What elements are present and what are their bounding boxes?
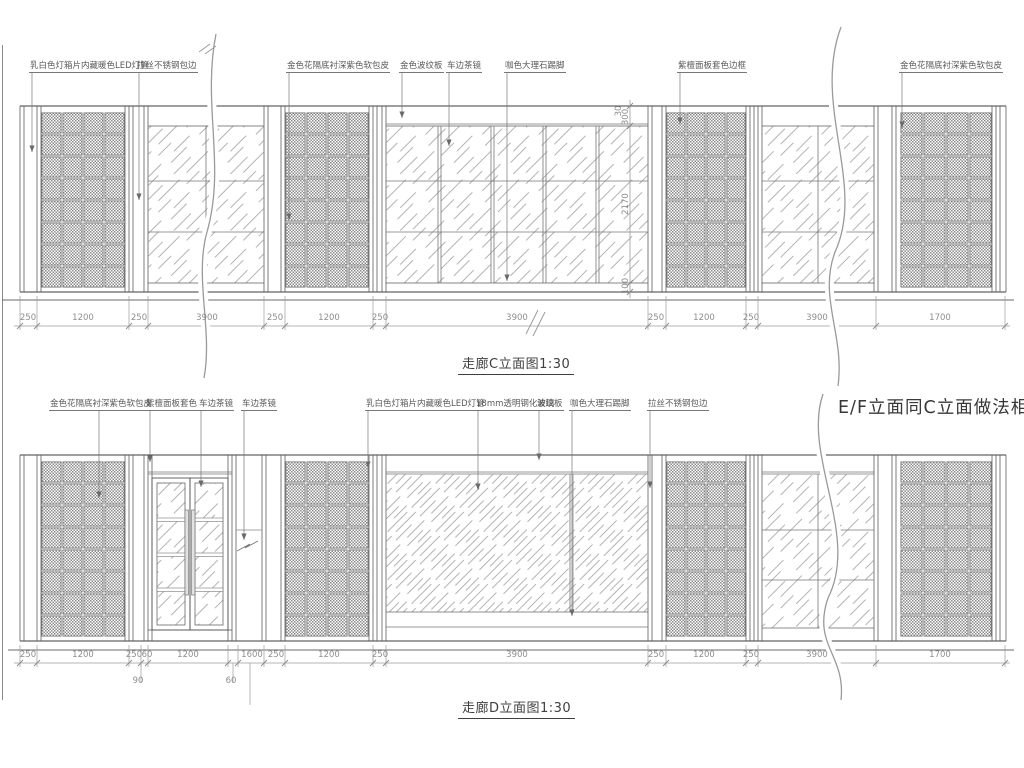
dimension-value: 250 [648,313,664,323]
dimension-value: 250 [372,650,388,660]
dimension-value: 1200 [693,650,715,660]
dimension-value: 1200 [693,313,715,323]
dimension-value: 1700 [929,650,951,660]
material-callout: 乳白色灯箱片内藏暖色LED灯管 [29,61,150,73]
dimension-value: 250 [20,313,36,323]
material-callout: 金色花隔底衬深紫色软包皮 [286,61,390,73]
dimension-value: 60 [142,650,153,660]
dimension-value: 250 [20,650,36,660]
material-callout: 拉丝不锈钢包边 [647,399,709,411]
ef-elevation-note: E/F立面同C立面做法相同 [838,394,1024,419]
elevation-c-title: 走廊C立面图1:30 [458,353,574,375]
dimension-value: 250 [126,650,142,660]
material-callout: 金色花隔底衬深紫色软包皮 [899,61,1003,73]
dimension-value: 1200 [318,650,340,660]
material-callout: 车边茶镜 [198,399,234,411]
material-callout: 乳白色灯箱片内藏暖色LED灯管 [365,399,486,411]
dimension-value: 250 [743,650,759,660]
dimension-value: 3900 [806,650,828,660]
material-callout: 车边茶镜 [446,61,482,73]
dimension-value: 1200 [318,313,340,323]
dimension-value: 1200 [72,650,94,660]
dimension-value-vertical: 2170 [621,182,631,226]
material-callout: 车边茶镜 [241,399,277,411]
cad-elevation-sheet: 乳白色灯箱片内藏暖色LED灯管 拉丝不锈钢包边 金色花隔底衬深紫色软包皮 金色波… [0,0,1024,768]
dimension-value: 3900 [506,313,528,323]
dimension-value: 1200 [177,650,199,660]
material-callout: 咖色大理石踢脚 [569,399,631,411]
dimension-value: 250 [268,650,284,660]
dimension-value-vertical: 100 [621,264,631,308]
dimension-value: 3900 [806,313,828,323]
material-callout: 咖色大理石踢脚 [504,61,566,73]
dimension-value: 1600 [241,650,263,660]
dimension-value: 250 [131,313,147,323]
material-callout: 拉丝不锈钢包边 [136,61,198,73]
material-callout: 紫檀面板套色 [145,399,198,411]
dimension-value: 250 [648,650,664,660]
dimension-value: 250 [267,313,283,323]
dimension-value-sub: 60 [226,676,237,686]
material-callout: 金色花隔底衬深紫色软包皮 [49,399,153,411]
material-callout: 金色波纹板 [399,61,444,73]
material-callout: 紫檀面板套色边框 [677,61,747,73]
dimension-value-vertical: 300 [621,95,631,139]
dimension-value-sub: 90 [133,676,144,686]
material-callout: 波纹板 [536,399,564,411]
dimension-value: 1700 [929,313,951,323]
dimension-value: 3900 [506,650,528,660]
dimension-value: 3900 [196,313,218,323]
dimension-value: 1200 [72,313,94,323]
elevation-d-title: 走廊D立面图1:30 [458,697,575,719]
dimension-value: 250 [372,313,388,323]
dimension-value: 250 [743,313,759,323]
